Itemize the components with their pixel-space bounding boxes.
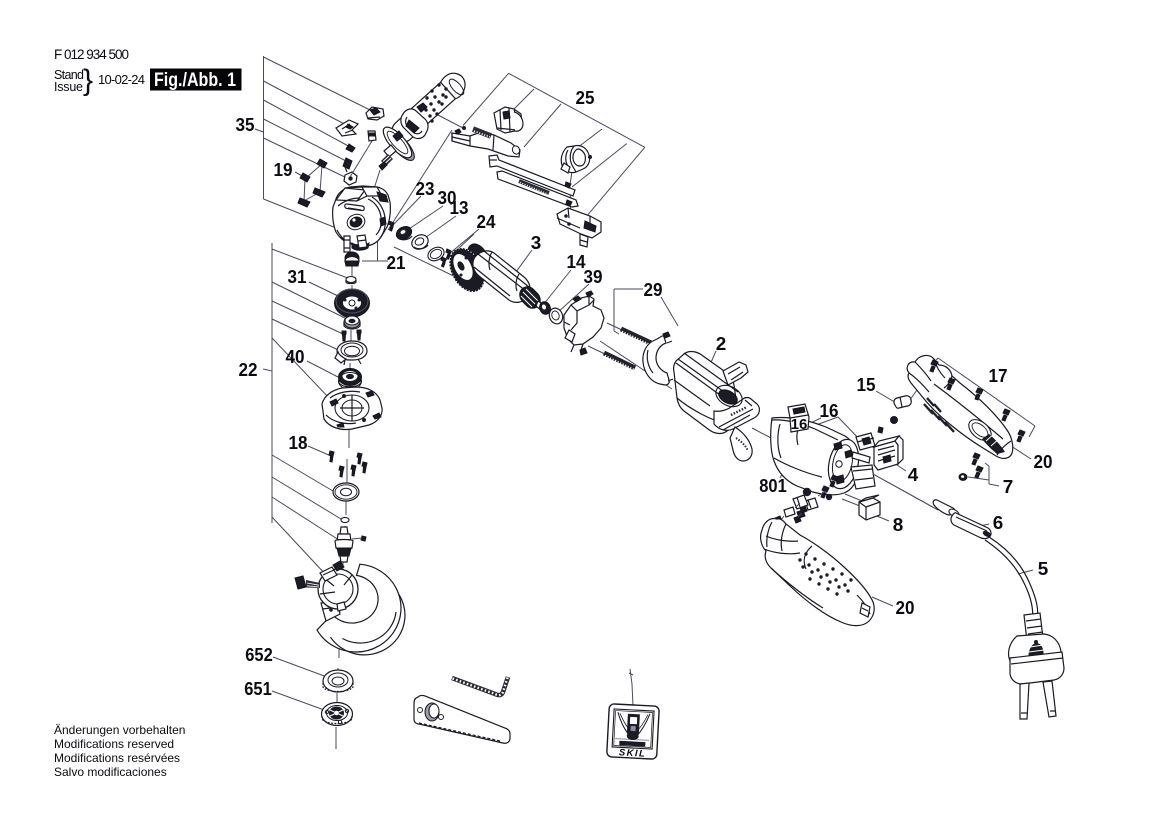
svg-text:Modifications reserved: Modifications reserved bbox=[54, 737, 174, 751]
svg-text:10-02-24: 10-02-24 bbox=[98, 72, 145, 87]
svg-text:2: 2 bbox=[716, 334, 727, 354]
svg-text:25: 25 bbox=[576, 88, 595, 108]
svg-text:5: 5 bbox=[1038, 559, 1049, 579]
svg-text:4: 4 bbox=[908, 465, 919, 485]
svg-text:39: 39 bbox=[584, 267, 603, 287]
svg-text:17: 17 bbox=[989, 366, 1008, 386]
svg-text:23: 23 bbox=[416, 179, 435, 199]
svg-text:7: 7 bbox=[1003, 477, 1014, 497]
svg-text:15: 15 bbox=[857, 375, 876, 395]
svg-text:16: 16 bbox=[820, 401, 839, 421]
svg-text:31: 31 bbox=[288, 267, 307, 287]
svg-text:20: 20 bbox=[896, 598, 915, 618]
svg-text:Fig./Abb. 1: Fig./Abb. 1 bbox=[154, 70, 236, 91]
svg-text:35: 35 bbox=[236, 115, 255, 135]
svg-text:}: } bbox=[83, 64, 93, 97]
svg-text:Issue: Issue bbox=[54, 80, 83, 94]
svg-text:29: 29 bbox=[644, 280, 663, 300]
svg-text:6: 6 bbox=[993, 513, 1004, 533]
svg-text:Modifications resérvées: Modifications resérvées bbox=[54, 751, 180, 765]
svg-text:16: 16 bbox=[791, 416, 808, 433]
svg-text:Änderungen vorbehalten: Änderungen vorbehalten bbox=[54, 723, 185, 737]
svg-text:8: 8 bbox=[893, 515, 904, 535]
svg-text:SKIL: SKIL bbox=[619, 747, 646, 759]
svg-text:20: 20 bbox=[1034, 452, 1053, 472]
svg-text:40: 40 bbox=[286, 347, 305, 367]
svg-text:19: 19 bbox=[274, 160, 293, 180]
svg-text:3: 3 bbox=[531, 233, 542, 253]
svg-text:13: 13 bbox=[450, 198, 469, 218]
svg-text:652: 652 bbox=[245, 645, 273, 665]
svg-text:22: 22 bbox=[239, 360, 258, 380]
svg-text:18: 18 bbox=[289, 433, 308, 453]
svg-text:24: 24 bbox=[477, 212, 496, 232]
svg-text:651: 651 bbox=[244, 679, 272, 699]
svg-text:Salvo modificaciones: Salvo modificaciones bbox=[54, 765, 167, 779]
svg-text:801: 801 bbox=[759, 476, 787, 496]
svg-text:F 012 934 500: F 012 934 500 bbox=[54, 47, 129, 62]
svg-text:21: 21 bbox=[387, 253, 406, 273]
